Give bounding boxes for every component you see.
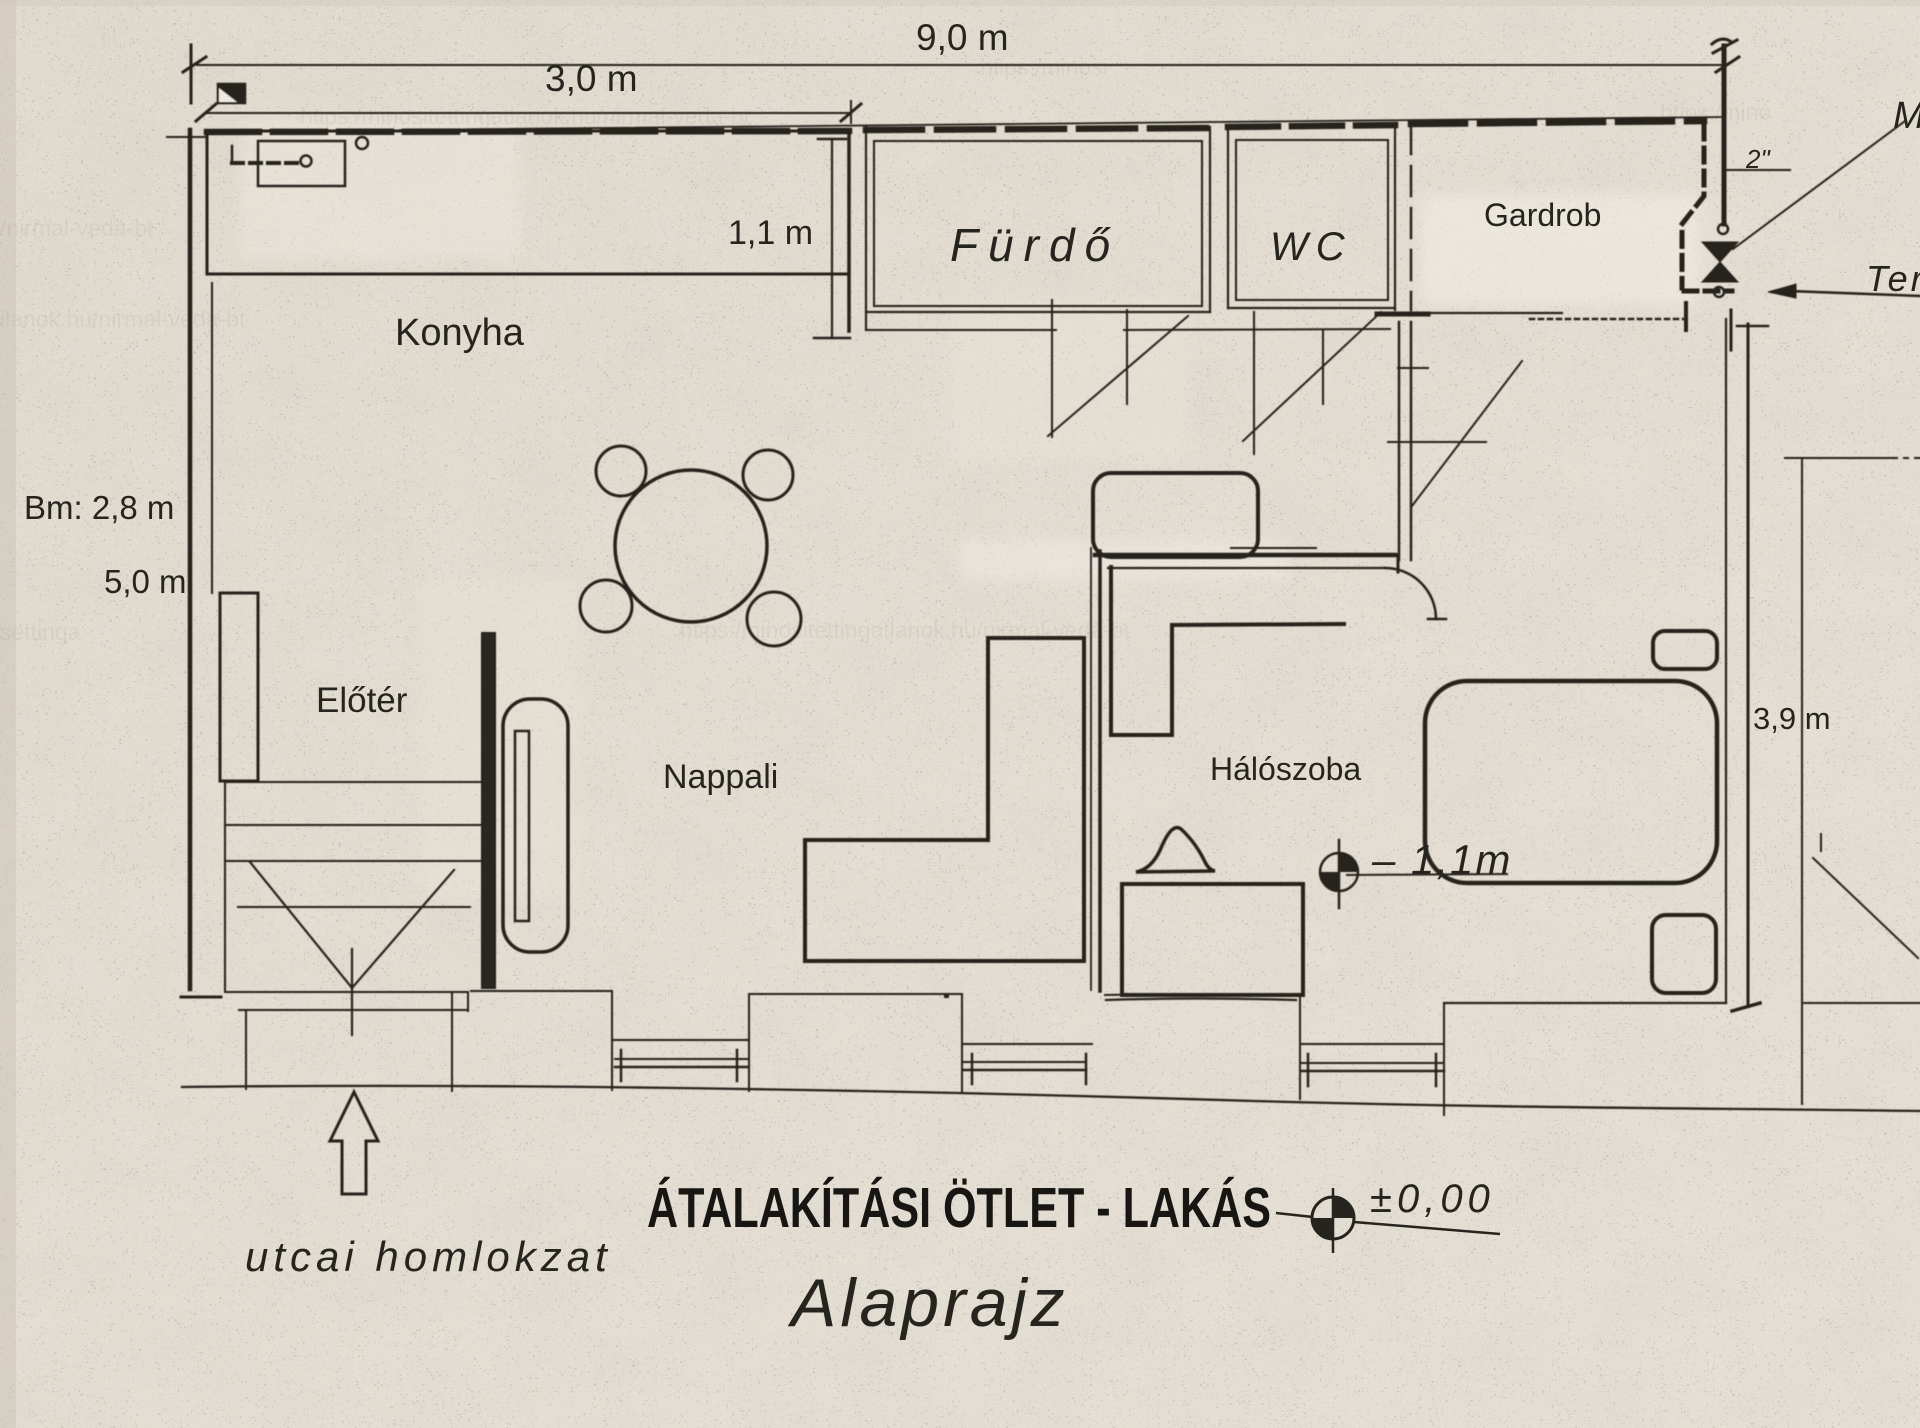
- svg-text:Terve: Terve: [1866, 258, 1920, 299]
- svg-text:WC: WC: [1270, 225, 1353, 269]
- svg-text:M: M: [1893, 95, 1920, 137]
- svg-text:/nirmal-veda-bt: /nirmal-veda-bt: [0, 215, 154, 241]
- svg-text:2": 2": [1745, 144, 1771, 174]
- svg-text:ilanok.hu/nirmal-veda-bt: ilanok.hu/nirmal-veda-bt: [0, 306, 246, 332]
- svg-text:htips:/mino: htips:/mino: [1660, 99, 1771, 125]
- svg-text:Alaprajz: Alaprajz: [787, 1265, 1069, 1341]
- svg-text:settinga: settinga: [0, 619, 81, 645]
- svg-text:ÁTALAKÍTÁSI ÖTLET - LAKÁS: ÁTALAKÍTÁSI ÖTLET - LAKÁS: [647, 1176, 1271, 1240]
- svg-text:9,0 m: 9,0 m: [916, 17, 1009, 58]
- svg-text:Konyha: Konyha: [395, 312, 525, 354]
- svg-text:Hálószoba: Hálószoba: [1210, 751, 1361, 787]
- svg-text:htips:/minositettingatlanok.hu: htips:/minositettingatlanok.hu/nirmal-ve…: [300, 103, 751, 129]
- svg-text:Nappali: Nappali: [663, 758, 778, 796]
- svg-text:1,1 m: 1,1 m: [728, 214, 813, 252]
- svg-text:Fürdő: Fürdő: [950, 219, 1120, 271]
- svg-text:Gardrob: Gardrob: [1484, 197, 1601, 233]
- svg-text:5,0 m: 5,0 m: [104, 563, 187, 600]
- svg-text:±0,00: ±0,00: [1370, 1177, 1495, 1221]
- svg-text:Előtér: Előtér: [316, 681, 408, 720]
- svg-text:utcai homlokzat: utcai homlokzat: [245, 1233, 612, 1280]
- svg-text:3,0 m: 3,0 m: [545, 58, 638, 99]
- svg-text:– 1,1m: – 1,1m: [1371, 836, 1512, 883]
- svg-text:Bm: 2,8 m: Bm: 2,8 m: [24, 489, 174, 526]
- svg-text:3,9 m: 3,9 m: [1753, 701, 1831, 736]
